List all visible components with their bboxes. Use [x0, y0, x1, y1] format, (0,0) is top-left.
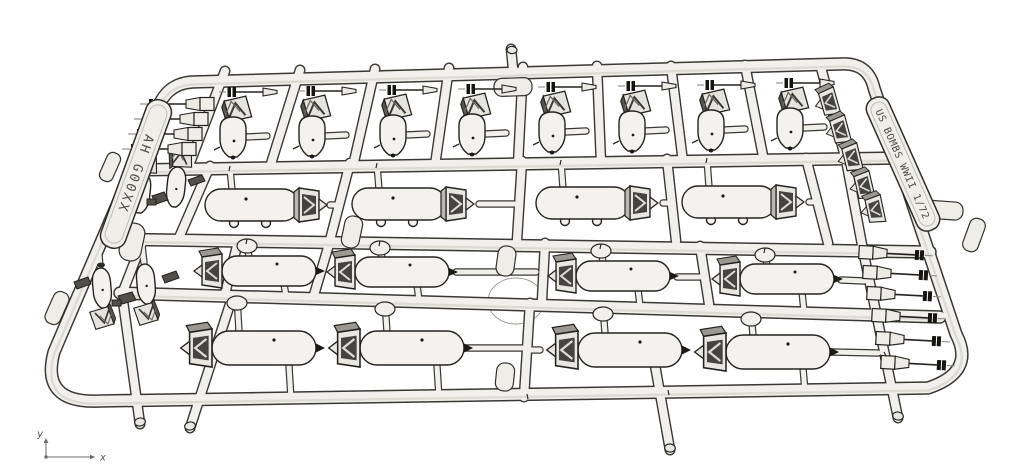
bomb-h2-4	[682, 185, 804, 225]
bomb-h4-1	[181, 322, 325, 367]
bomb-h3-1	[194, 248, 325, 288]
bomb-h4-3	[547, 324, 691, 369]
render-canvas: AH G00XX US BOMBS WWII 1/72 y x	[0, 0, 1023, 475]
bomb-h2-1	[205, 188, 327, 228]
axis-y-label: y	[36, 429, 44, 440]
bomb-v-1	[214, 87, 277, 160]
bomb-h2-2	[352, 187, 474, 227]
bomb-h3-2	[327, 249, 458, 289]
bomb-v-2	[293, 86, 356, 159]
bomb-v-6	[613, 81, 676, 154]
bomb-h2-3	[536, 186, 658, 226]
bomb-h3-3	[548, 253, 679, 293]
bomb-h4-4	[695, 326, 839, 371]
bomb-v-5	[533, 82, 596, 155]
axis-x-label: x	[99, 453, 106, 464]
view-axis-indicator: y x	[36, 429, 106, 464]
bomb-h3-4	[712, 256, 843, 296]
bomb-h4-2	[329, 322, 473, 367]
sprue-illustration: AH G00XX US BOMBS WWII 1/72 y x	[0, 0, 1023, 475]
bomb-v-3	[374, 85, 437, 158]
